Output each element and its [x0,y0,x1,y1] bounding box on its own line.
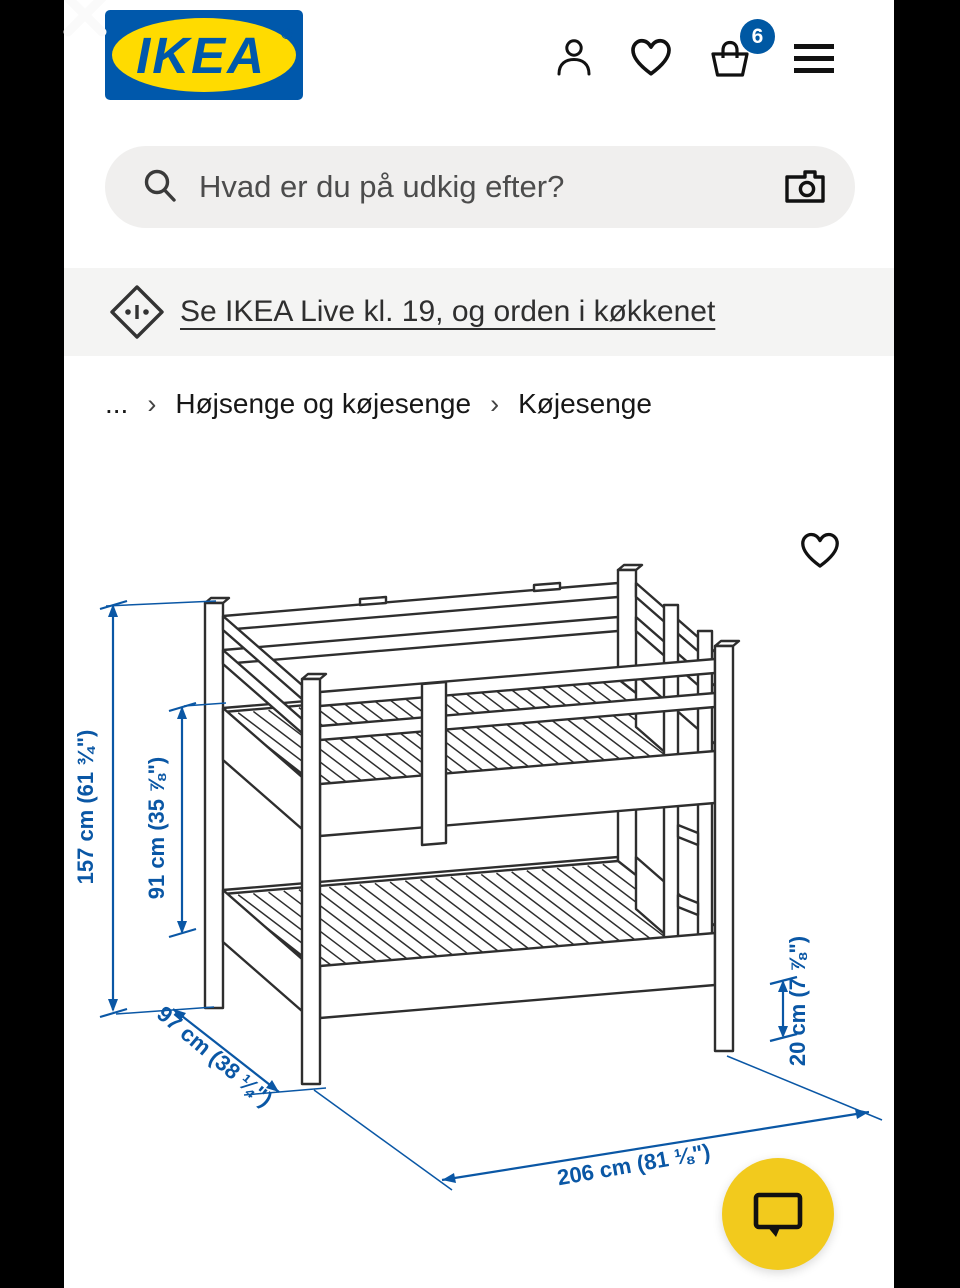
breadcrumb: ... › Højsenge og køjesenge › Køjesenge [105,388,652,420]
chat-bubble-icon [748,1184,808,1244]
right-letterbox [894,0,960,1288]
ikea-logo[interactable]: IKEA ® [105,10,303,100]
cart-badge: 6 [740,19,775,54]
dimension-annotations: 157 cm (61 ¾") 91 cm (35 ⅞") 97 cm (38 ¼… [73,601,882,1190]
page-content: IKEA ® [64,0,894,1288]
profile-icon [551,35,597,81]
chat-fab-button[interactable] [722,1158,834,1270]
search-icon [139,166,181,208]
offer-tag-icon [108,283,166,341]
product-favorite-button[interactable] [796,528,844,576]
close-button[interactable] [56,0,114,44]
search-input[interactable] [199,169,783,205]
menu-button[interactable] [791,35,837,81]
breadcrumb-separator: › [490,388,499,420]
hamburger-icon [791,35,837,81]
breadcrumb-ellipsis[interactable]: ... [105,388,128,420]
dimension-lower-bed-height: 20 cm (7 ⅞") [785,936,810,1066]
camera-icon [783,166,827,206]
heart-icon [628,35,674,81]
breadcrumb-separator: › [147,388,156,420]
dimension-total-height: 157 cm (61 ¾") [73,730,98,885]
ikea-logo-icon: IKEA ® [105,10,303,100]
breadcrumb-item-kojesenge[interactable]: Køjesenge [518,388,652,420]
cart-badge-count: 6 [752,25,764,49]
close-icon [56,0,114,44]
left-letterbox [0,0,64,1288]
search-bar [105,146,855,228]
camera-search-button[interactable] [783,166,827,209]
dimension-inner-height: 91 cm (35 ⅞") [144,757,169,900]
promo-link[interactable]: Se IKEA Live kl. 19, og orden i køkkenet [180,295,715,329]
logo-text: IKEA [136,27,266,84]
bunk-bed-drawing [205,565,739,1084]
dimension-width: 97 cm (38 ¼") [152,1001,277,1112]
dimension-length: 206 cm (81 ⅛") [555,1139,712,1190]
favorites-button[interactable] [628,35,674,81]
breadcrumb-item-hojsenge[interactable]: Højsenge og køjesenge [175,388,471,420]
phone-screen: IKEA ® [0,0,960,1288]
registered-mark: ® [281,26,293,43]
promo-banner: Se IKEA Live kl. 19, og orden i køkkenet [64,268,894,356]
heart-icon [798,529,842,573]
profile-button[interactable] [551,35,597,81]
